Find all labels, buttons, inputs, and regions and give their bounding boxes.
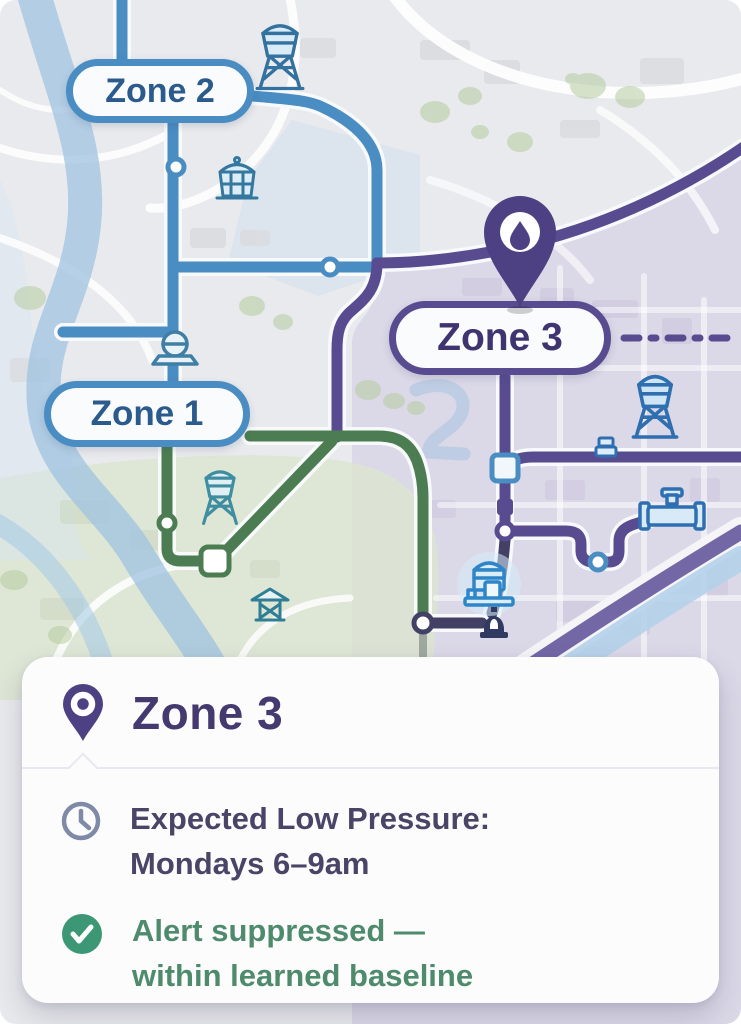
card-header: Zone 3 [22,657,719,759]
map-pin-icon [60,681,106,745]
zone1-map-label[interactable]: Zone 1 [44,381,250,447]
card-divider [22,767,719,769]
app-screen: Zone 2 Zone 1 Zone 3 Zone 3 [0,0,741,1024]
pump-station-icon [457,552,521,616]
alert-status-row: Alert suppressed — within learned baseli… [60,909,681,999]
alert-line2: within learned baseline [132,954,473,999]
valve-icon [596,438,616,456]
pin-shadow [507,306,533,314]
zone3-pin-marker[interactable] [480,187,560,317]
zone3-label-text: Zone 3 [437,316,563,360]
zone1-label-text: Zone 1 [91,394,204,434]
check-circle-icon [60,912,104,956]
zone2-label-text: Zone 2 [105,72,215,111]
zone-detail-card: Zone 3 Expected Low Pressure: Mondays 6–… [22,657,719,1003]
clock-icon [60,800,102,842]
card-title: Zone 3 [132,686,283,740]
schedule-row: Expected Low Pressure: Mondays 6–9am [60,797,681,887]
alert-line1: Alert suppressed — [132,909,473,954]
card-body: Expected Low Pressure: Mondays 6–9am Ale… [22,769,719,999]
zone2-map-label[interactable]: Zone 2 [66,59,254,123]
schedule-line2: Mondays 6–9am [130,842,490,887]
schedule-line1: Expected Low Pressure: [130,797,490,842]
